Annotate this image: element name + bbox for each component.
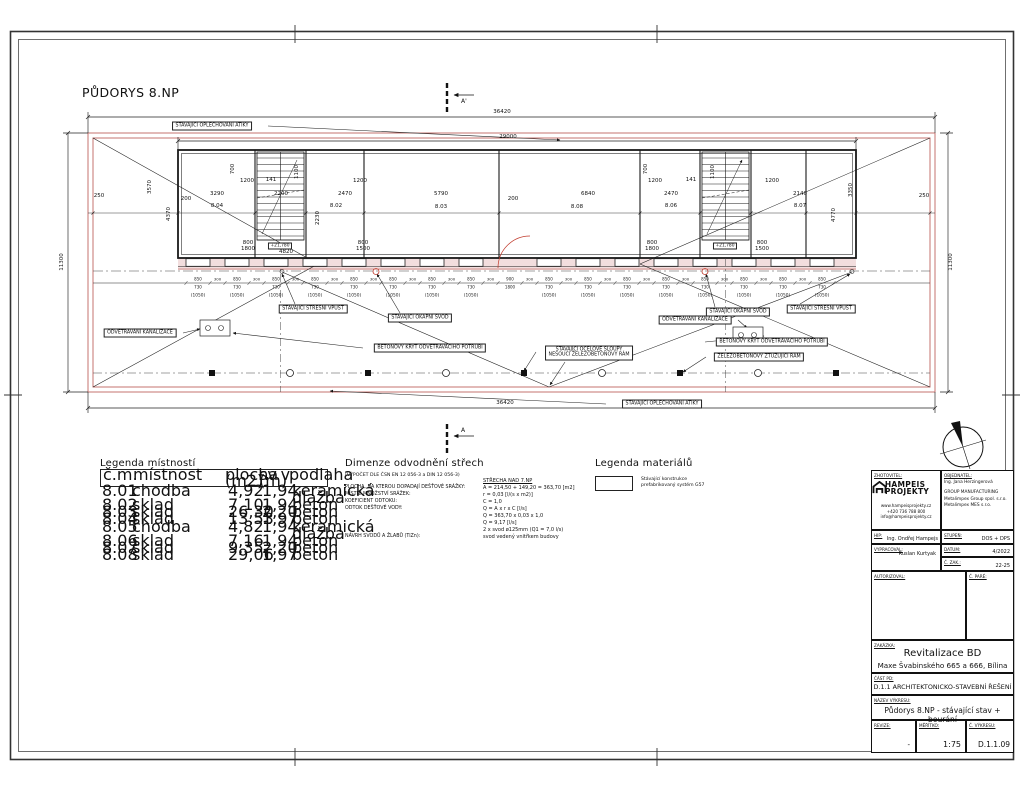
- legend-materials-title: Legenda materiálů: [595, 458, 704, 469]
- cell-meritko: MĚŘÍTKO: 1:75: [916, 720, 966, 753]
- cell-cislo-pare: Č. PARÉ:: [966, 571, 1014, 640]
- level-mark-left: +21,780: [268, 243, 292, 250]
- cell-cislo-zakazky: Č. ZAK.: 22-25: [941, 557, 1014, 571]
- section-label-top: A': [461, 98, 467, 105]
- chain-dim-top: 850: [623, 276, 631, 281]
- project-name: Revitalizace BD: [872, 648, 1013, 659]
- room-cell: beton: [286, 551, 328, 558]
- label-betonovy-kryt-left: BETONOVÝ KRYT ODVĚTRÁVACÍHO POTRUBÍ: [374, 344, 486, 353]
- chain-dim-top: 850: [584, 276, 592, 281]
- roof-equipment: [200, 236, 854, 343]
- chain-dim-top: 850: [233, 276, 241, 281]
- chain-dim-paren: (1050): [464, 293, 478, 298]
- chain-dim-gap: 300: [721, 276, 728, 281]
- chain-dim-gap: 300: [409, 276, 416, 281]
- chain-dim-top: 850: [428, 276, 436, 281]
- chain-dim-bottom: 730: [545, 285, 553, 290]
- chain-dim-bottom: 730: [428, 285, 436, 290]
- chain-dim-paren: (1050): [542, 293, 556, 298]
- chain-dim-gap: 300: [370, 276, 377, 281]
- title-block: ZHOTOVITEL: HAMPEIS PROJEKTY www.hampeis…: [871, 470, 1014, 753]
- chain-dim-bottom: 730: [233, 285, 241, 290]
- label-ocelove-sloupy: STÁVAJÍCÍ OCELOVÉ SLOUPY NESOUCÍ ŽELEZOB…: [545, 346, 633, 361]
- dim-label: 2140: [793, 191, 807, 197]
- dim-label: 1800: [645, 246, 659, 252]
- chain-dim-gap: 300: [760, 276, 767, 281]
- chain-dim-paren: (1050): [659, 293, 673, 298]
- dim-label: 200: [181, 196, 192, 202]
- chain-dim-paren: (1050): [698, 293, 712, 298]
- chain-dim-paren: (1050): [308, 293, 322, 298]
- cell-autorizoval: AUTORIZOVAL:: [871, 571, 966, 640]
- cell-cislo-vykresu: Č. VÝKRESU: D.1.1.09: [966, 720, 1014, 753]
- chain-dim-paren: (1050): [737, 293, 751, 298]
- room-cell: 8.08: [102, 551, 132, 558]
- label-atika-bottom: STÁVAJÍCÍ OPLECHOVÁNÍ ATIKY: [622, 400, 702, 409]
- chain-dim-top: 850: [740, 276, 748, 281]
- dim-label: 141: [686, 177, 697, 183]
- drainage-right-line: C = 1,0: [483, 499, 643, 506]
- cell-cast-pd: ČÁST PD: D.1.1 ARCHITEKTONICKO-STAVEBNÍ …: [871, 673, 1014, 695]
- dim-label: 36420: [493, 109, 511, 115]
- project-address: Maxe Švabinského 665 a 666, Bílina: [872, 661, 1013, 670]
- label-stresni-vpust-left: STÁVAJÍCÍ STŘEŠNÍ VPUSŤ: [279, 305, 348, 314]
- label-betonovy-kryt-right: BETONOVÝ KRYT ODVĚTRÁVACÍHO POTRUBÍ: [716, 338, 828, 347]
- room-cell: 1,97: [262, 551, 286, 558]
- room-row: 8.08sklad29,061,97beton: [100, 551, 330, 558]
- chain-dim-bottom: 1800: [505, 285, 515, 290]
- chain-dim-bottom: 730: [623, 285, 631, 290]
- chain-dim-gap: 300: [253, 276, 260, 281]
- legend-materials: Legenda materiálů Stávající konstrukce p…: [595, 458, 704, 491]
- dim-label: 1200: [765, 178, 779, 184]
- dim-label: 141: [266, 177, 277, 183]
- label-atika-top: STÁVAJÍCÍ OPLECHOVÁNÍ ATIKY: [172, 122, 252, 131]
- chain-dim-bottom: 730: [701, 285, 709, 290]
- cell-datum: DATUM: 4/2022: [941, 544, 1014, 557]
- cell-hip: HIP: Ing. Ondřej Hampejs: [871, 530, 941, 544]
- cell-revize: REVIZE: -: [871, 720, 916, 753]
- legend-rooms-body: 8.01chodba4,921,94keramická dlažba8.02sk…: [100, 487, 330, 559]
- level-mark-right: +21,780: [713, 243, 737, 250]
- chain-dim-top: 850: [194, 276, 202, 281]
- chain-dim-bottom: 730: [389, 285, 397, 290]
- dim-label: 4370: [166, 207, 172, 221]
- cell-zhotovitel: ZHOTOVITEL: HAMPEIS PROJEKTY www.hampeis…: [871, 470, 941, 530]
- chain-dim-gap: 300: [565, 276, 572, 281]
- dim-label: 1100: [294, 165, 300, 179]
- room-cell: sklad: [132, 551, 228, 558]
- chain-dim-paren: (1050): [230, 293, 244, 298]
- drainage-right-line: Q = 9,17 [l/s]: [483, 520, 643, 527]
- dim-label: 11300: [59, 253, 65, 271]
- chain-dim-bottom: 730: [467, 285, 475, 290]
- dim-label: 250: [919, 193, 930, 199]
- dim-label: 8.06: [665, 203, 677, 209]
- drawing-sheet: { "sheet": { "title": "PŮDORYS 8.NP" }, …: [0, 0, 1024, 791]
- dim-label: 2200: [274, 191, 288, 197]
- dim-label: 700: [643, 164, 649, 175]
- dim-label: 700: [230, 164, 236, 175]
- chain-dim-top: 850: [467, 276, 475, 281]
- house-logo-icon: [872, 481, 887, 494]
- label-okapni-svod-left: STÁVAJÍCÍ OKAPNÍ SVOD: [388, 314, 452, 323]
- dim-label: 2470: [664, 191, 678, 197]
- dim-label: 8.02: [330, 203, 342, 209]
- chain-dim-paren: (1050): [815, 293, 829, 298]
- chain-dim-top: 850: [545, 276, 553, 281]
- contact-info: www.hampeisprojekty.cz +420 736 788 800 …: [872, 503, 940, 520]
- chain-dim-gap: 300: [331, 276, 338, 281]
- cell-zakazka: ZAKÁZKA: Revitalizace BD Maxe Švabinskéh…: [871, 640, 1014, 673]
- dim-label: 200: [508, 196, 519, 202]
- chain-dim-top: 850: [350, 276, 358, 281]
- chain-dim-gap: 300: [487, 276, 494, 281]
- chain-dim-top: 850: [779, 276, 787, 281]
- dim-label: 1200: [240, 178, 254, 184]
- dim-label: 36420: [496, 400, 514, 406]
- label-ocelove-sloupy-line2: NESOUCÍ ŽELEZOBETONOVÝ RÁM: [549, 353, 630, 359]
- label-ztuzujici-ram: ŽELEZOBETONOVÝ ZTUŽUJÍCÍ RÁM: [714, 353, 804, 362]
- chain-dim-bottom: 730: [740, 285, 748, 290]
- chain-dim-paren: (1050): [620, 293, 634, 298]
- dim-label: 1500: [356, 246, 370, 252]
- material-description: Stávající konstrukce prefabrikovaný syst…: [641, 477, 704, 491]
- chain-dim-top: 850: [272, 276, 280, 281]
- chain-dim-bottom: 730: [662, 285, 670, 290]
- chain-dim-paren: (1050): [776, 293, 790, 298]
- dim-label: 250: [94, 193, 105, 199]
- dim-label: 1800: [241, 246, 255, 252]
- dim-label: 4820: [279, 249, 293, 255]
- chain-dim-paren: (1050): [191, 293, 205, 298]
- chain-dim-gap: 300: [604, 276, 611, 281]
- drawing-number: D.1.1.09: [978, 740, 1010, 749]
- drainage-right-line: svod vedený vnitřkem budovy: [483, 534, 643, 541]
- cell-objednatel: OBJEDNATEL: Ing. Jana Herzingerová GROUP…: [941, 470, 1014, 530]
- room-cell: 29,06: [228, 551, 262, 558]
- chain-dim-bottom: 730: [584, 285, 592, 290]
- chain-dim-gap: 300: [214, 276, 221, 281]
- cell-nazev-vykresu: NÁZEV VÝKRESU: Půdorys 8.NP - stávající …: [871, 695, 1014, 720]
- north-compass-icon: [940, 421, 986, 469]
- dim-label: 1500: [755, 246, 769, 252]
- chain-dim-bottom: 730: [350, 285, 358, 290]
- dim-label: 1200: [648, 178, 662, 184]
- chain-dim-gap: 300: [292, 276, 299, 281]
- drainage-right-line: Q = 363,70 x 0,03 x 1,0: [483, 513, 643, 520]
- label-odvetravani-right: ODVĚTRÁVÁNÍ KANALIZACE: [659, 316, 732, 325]
- dim-label: 2230: [315, 211, 321, 225]
- dim-label: 3290: [210, 191, 224, 197]
- chain-dim-paren: (1050): [347, 293, 361, 298]
- chain-dim-top: 850: [311, 276, 319, 281]
- dim-label: 11300: [948, 253, 954, 271]
- chain-dim-bottom: 730: [194, 285, 202, 290]
- client-info: Ing. Jana Herzingerová GROUP MANUFACTURI…: [944, 480, 1007, 510]
- chain-dim-paren: (1050): [269, 293, 283, 298]
- hampeis-logo: HAMPEIS PROJEKTY: [872, 481, 940, 495]
- dim-label: 4770: [831, 208, 837, 222]
- drainage-right-line: r = 0,03 [l/(s x m2)]: [483, 492, 643, 499]
- chain-dim-paren: (1050): [581, 293, 595, 298]
- dim-label: 8.03: [435, 204, 447, 210]
- dim-label: 8.08: [571, 204, 583, 210]
- chain-dim-bottom: 730: [818, 285, 826, 290]
- dim-label: 5790: [434, 191, 448, 197]
- label-stresni-vpust-right: STÁVAJÍCÍ STŘEŠNÍ VPUSŤ: [787, 305, 856, 314]
- chain-dim-bottom: 730: [272, 285, 280, 290]
- drainage-right-line: 2 x svod ø125mm (Q1 = 7,0 l/s): [483, 527, 643, 534]
- chain-dim-bottom: 730: [311, 285, 319, 290]
- drainage-right-line: Q = A x r x C [l/s]: [483, 506, 643, 513]
- dim-label: 1100: [710, 165, 716, 179]
- scale-value: 1:75: [943, 740, 961, 749]
- chain-dim-top: 900: [506, 276, 514, 281]
- chain-dim-gap: 300: [682, 276, 689, 281]
- dim-label: 3570: [147, 180, 153, 194]
- dim-label: 3350: [848, 183, 854, 197]
- chain-dim-top: 850: [662, 276, 670, 281]
- dim-label: 2470: [338, 191, 352, 197]
- legend-rooms: Legenda místností č.m.místnostplocha(m2)…: [100, 458, 330, 559]
- dim-label: 6840: [581, 191, 595, 197]
- section-label-bottom: A: [461, 427, 465, 434]
- chain-dim-bottom: 730: [779, 285, 787, 290]
- cell-stupen: STUPEŇ: DOS + DPS: [941, 530, 1014, 544]
- page-title: PŮDORYS 8.NP: [82, 85, 179, 100]
- chain-dim-paren: (1050): [425, 293, 439, 298]
- dim-label: 8.04: [211, 203, 223, 209]
- label-odvetravani-left: ODVĚTRÁVÁNÍ KANALIZACE: [104, 329, 177, 338]
- chain-dim-top: 850: [701, 276, 709, 281]
- chain-dim-gap: 300: [448, 276, 455, 281]
- chain-dim-gap: 300: [526, 276, 533, 281]
- dim-label: 8.07: [794, 203, 806, 209]
- dim-label: 29000: [499, 134, 517, 140]
- chain-dim-top: 850: [818, 276, 826, 281]
- chain-dim-top: 850: [389, 276, 397, 281]
- cell-vypracoval: VYPRACOVAL: Ruslan Kurtyak: [871, 544, 941, 571]
- material-swatch: [595, 476, 633, 491]
- chain-dim-paren: (1050): [386, 293, 400, 298]
- chain-dim-gap: 300: [643, 276, 650, 281]
- chain-dim-gap: 300: [799, 276, 806, 281]
- dim-label: 1200: [353, 178, 367, 184]
